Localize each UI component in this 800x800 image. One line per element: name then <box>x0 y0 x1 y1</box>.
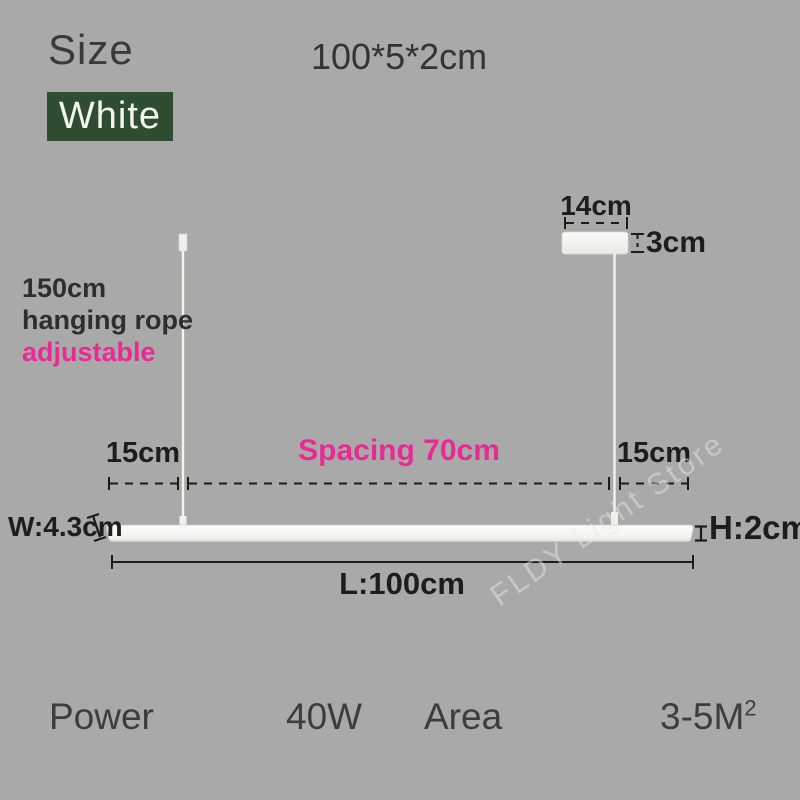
spacing-left-label: 15cm <box>101 437 185 470</box>
canopy-height-label: 3cm <box>646 226 706 260</box>
bar-length-label: L:100cm <box>302 566 502 602</box>
area-value-number: 3-5M <box>660 696 744 737</box>
spacing-center-label: Spacing 70cm <box>294 434 504 468</box>
canopy-height-dimension <box>631 234 644 252</box>
canopy-width-label: 14cm <box>558 190 634 222</box>
rope-note: 150cm hanging rope adjustable <box>22 272 193 368</box>
area-value-superscript: 2 <box>744 696 756 721</box>
spacing-dimension <box>109 477 688 490</box>
rope-note-line1: 150cm <box>22 272 193 304</box>
area-label: Area <box>424 696 502 738</box>
size-value: 100*5*2cm <box>311 36 487 78</box>
bar-height-tick <box>695 527 707 541</box>
power-label: Power <box>49 696 154 738</box>
area-value: 3-5M2 <box>660 696 757 738</box>
color-option-badge[interactable]: White <box>47 92 173 141</box>
size-label: Size <box>48 26 134 74</box>
product-spec-diagram: Size 100*5*2cm White 14cm 3cm 150cm hang… <box>0 0 800 800</box>
rope-note-line3: adjustable <box>22 336 193 368</box>
bar-width-label: W:4.3cm <box>8 511 123 543</box>
bar-height-label: H:2cm <box>709 509 800 547</box>
power-value: 40W <box>286 696 362 738</box>
rope-note-line2: hanging rope <box>22 304 193 336</box>
